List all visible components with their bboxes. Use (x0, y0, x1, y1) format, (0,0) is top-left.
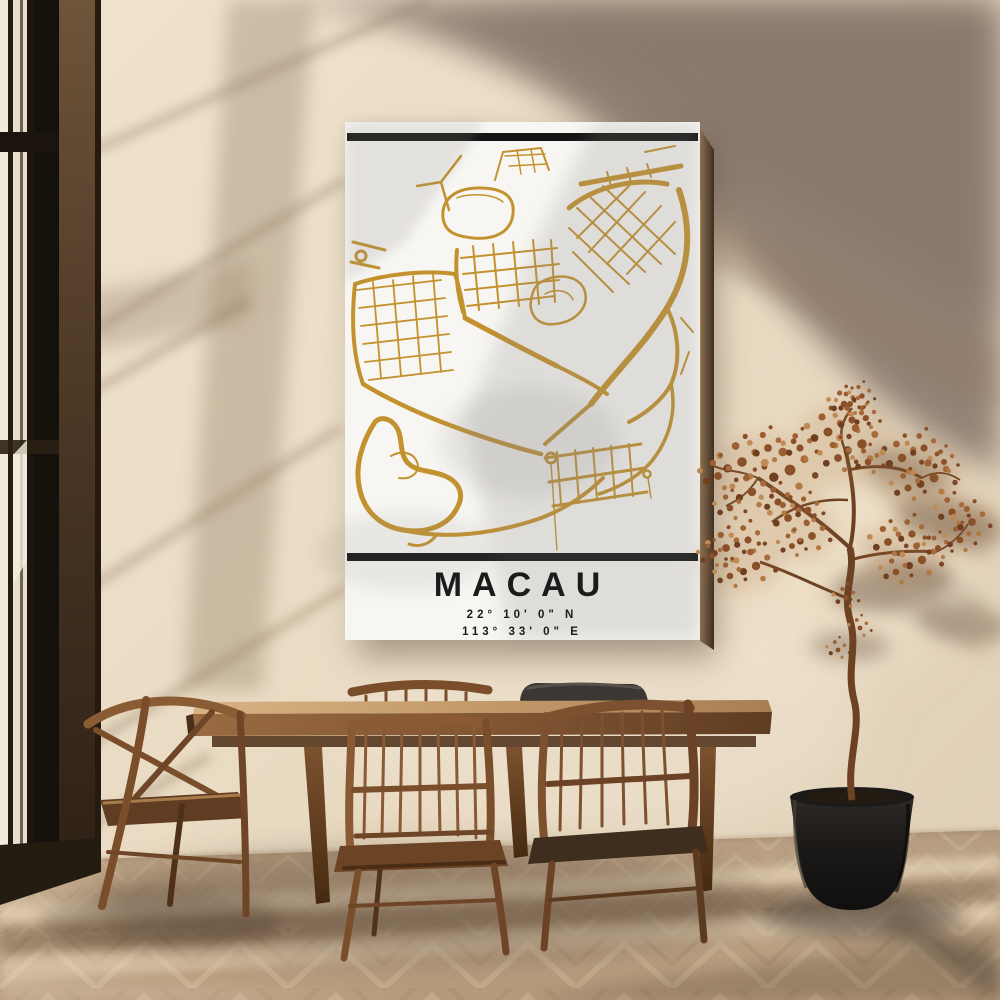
dining-room-photo: MACAU 22° 10' 0" N 113° 33' 0" E (0, 0, 1000, 1000)
poster-longitude: 113° 33' 0" E (462, 626, 582, 638)
window-frame (0, 0, 101, 905)
poster-face: MACAU 22° 10' 0" N 113° 33' 0" E (315, 122, 700, 640)
window-jamb (59, 0, 97, 860)
window-rail (0, 132, 59, 152)
scene-canvas: MACAU 22° 10' 0" N 113° 33' 0" E (0, 0, 1000, 1000)
poster-latitude: 22° 10' 0" N (467, 609, 578, 621)
wall-art-poster: MACAU 22° 10' 0" N 113° 33' 0" E (315, 122, 718, 658)
poster-title: MACAU (434, 566, 611, 604)
